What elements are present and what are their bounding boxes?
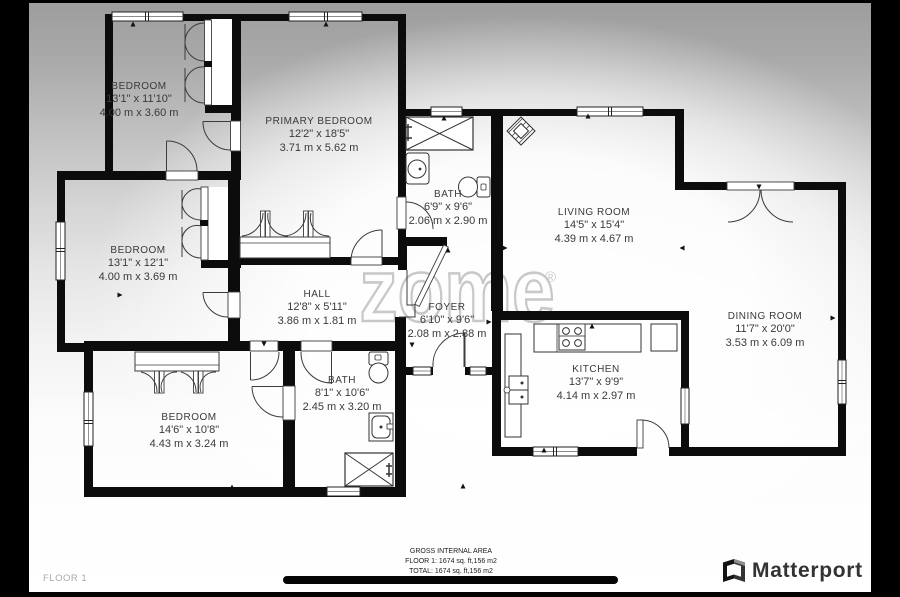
svg-text:®: ® [545,269,556,286]
svg-text:Matterport: Matterport [752,559,863,582]
svg-text:2.06 m x 2.90 m: 2.06 m x 2.90 m [409,215,488,227]
svg-text:8'1" x 10'6": 8'1" x 10'6" [315,387,369,399]
svg-text:3.53 m x 6.09 m: 3.53 m x 6.09 m [726,337,805,349]
svg-text:TOTAL: 1674 sq. ft,156 m2: TOTAL: 1674 sq. ft,156 m2 [409,568,493,575]
svg-text:13'1" x 11'10": 13'1" x 11'10" [106,93,172,105]
svg-text:12'8" x 5'11": 12'8" x 5'11" [287,301,347,313]
svg-text:DINING ROOM: DINING ROOM [728,311,802,322]
svg-text:4.14 m x 2.97 m: 4.14 m x 2.97 m [557,390,636,402]
svg-text:FLOOR 1: 1674 sq. ft,156 m2: FLOOR 1: 1674 sq. ft,156 m2 [405,558,497,565]
svg-text:FLOOR 1: FLOOR 1 [43,573,87,584]
svg-text:KITCHEN: KITCHEN [572,364,619,375]
svg-text:zome: zome [360,241,555,341]
svg-text:BEDROOM: BEDROOM [161,412,216,423]
svg-text:4.43 m x 3.24 m: 4.43 m x 3.24 m [150,438,229,450]
svg-text:14'5" x 15'4": 14'5" x 15'4" [564,219,624,231]
svg-text:13'1" x 12'1": 13'1" x 12'1" [108,257,168,269]
svg-text:13'7" x 9'9": 13'7" x 9'9" [569,376,623,388]
svg-text:6'9" x 9'6": 6'9" x 9'6" [424,201,472,213]
svg-text:3.86 m x 1.81 m: 3.86 m x 1.81 m [278,315,357,327]
svg-text:BATH: BATH [328,375,356,386]
svg-text:4.00 m x 3.60 m: 4.00 m x 3.60 m [100,107,179,119]
svg-text:BEDROOM: BEDROOM [110,245,165,256]
svg-text:PRIMARY BEDROOM: PRIMARY BEDROOM [265,116,372,127]
svg-text:4.00 m x 3.69 m: 4.00 m x 3.69 m [99,271,178,283]
svg-text:6'10" x 9'6": 6'10" x 9'6" [420,314,474,326]
svg-text:HALL: HALL [303,289,330,300]
svg-text:11'7" x 20'0": 11'7" x 20'0" [735,323,795,335]
svg-text:2.45 m x 3.20 m: 2.45 m x 3.20 m [303,401,382,413]
svg-text:2.08 m x 2.88 m: 2.08 m x 2.88 m [408,328,487,340]
svg-text:12'2" x 18'5": 12'2" x 18'5" [289,128,349,140]
svg-text:FOYER: FOYER [429,302,466,313]
svg-text:BATH: BATH [434,189,462,200]
svg-text:14'6" x 10'8": 14'6" x 10'8" [159,424,219,436]
svg-text:4.39 m x 4.67 m: 4.39 m x 4.67 m [555,233,634,245]
svg-text:LIVING ROOM: LIVING ROOM [558,207,630,218]
svg-text:3.71 m x 5.62 m: 3.71 m x 5.62 m [280,142,359,154]
svg-text:GROSS INTERNAL AREA: GROSS INTERNAL AREA [410,548,493,555]
svg-text:BEDROOM: BEDROOM [111,81,166,92]
